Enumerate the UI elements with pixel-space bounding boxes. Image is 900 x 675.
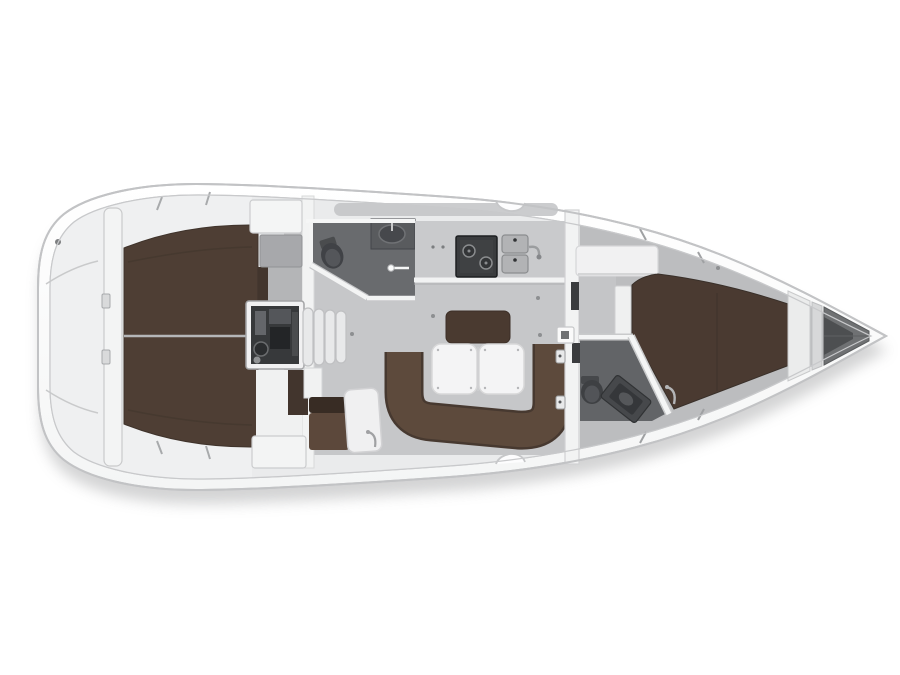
sink-basin bbox=[502, 255, 528, 273]
cabin-floor bbox=[579, 276, 616, 342]
step bbox=[325, 310, 335, 364]
bow-bulkhead-strip bbox=[812, 302, 822, 370]
wardrobe-top bbox=[260, 235, 302, 267]
lower-locker bbox=[252, 436, 306, 468]
drain-dot bbox=[513, 238, 517, 242]
galley bbox=[414, 221, 566, 284]
toilet-seat bbox=[585, 386, 600, 403]
hinge-dot bbox=[559, 401, 562, 404]
floor-dot bbox=[538, 333, 542, 337]
drain-dot bbox=[513, 258, 517, 262]
nav-seat bbox=[309, 413, 349, 450]
table-screw bbox=[517, 387, 519, 389]
handle-dot bbox=[366, 430, 370, 434]
bulkhead-hinge-icon bbox=[102, 294, 110, 308]
table-leaf bbox=[432, 344, 477, 394]
burner-dot bbox=[468, 250, 471, 253]
stove-icon bbox=[456, 236, 497, 277]
saloon-table bbox=[432, 344, 524, 394]
faucet-base bbox=[537, 255, 542, 260]
knob-dot bbox=[441, 245, 444, 248]
knob-dot bbox=[431, 245, 434, 248]
burner-dot bbox=[485, 262, 488, 265]
table-screw bbox=[517, 349, 519, 351]
table-screw bbox=[470, 387, 472, 389]
nav-wall bbox=[304, 368, 322, 398]
aft-cabins bbox=[124, 225, 258, 447]
floor-dot bbox=[431, 314, 435, 318]
floor-plan-canvas bbox=[0, 0, 900, 675]
table-screw bbox=[437, 387, 439, 389]
engine-compartment bbox=[246, 301, 304, 369]
step bbox=[303, 308, 313, 366]
sink-basin bbox=[502, 235, 528, 253]
wardrobe bbox=[615, 286, 631, 340]
engine-pulley-icon bbox=[254, 342, 268, 356]
bulkhead-hinge-icon bbox=[102, 350, 110, 364]
floor-dot bbox=[350, 332, 354, 336]
engine-part bbox=[255, 311, 266, 335]
engine-cap-icon bbox=[254, 357, 261, 364]
stern-bulkhead bbox=[104, 208, 122, 466]
door-catch-plate bbox=[561, 331, 569, 339]
yacht-floor-plan bbox=[0, 0, 900, 675]
nav-seat-backrest bbox=[309, 397, 349, 413]
table-screw bbox=[484, 349, 486, 351]
companionway-steps bbox=[303, 308, 346, 366]
settee-backrest bbox=[446, 311, 510, 343]
deck-dot bbox=[716, 266, 720, 270]
hinge-dot bbox=[559, 355, 562, 358]
handle-dot bbox=[665, 385, 669, 389]
step bbox=[336, 311, 346, 363]
table-screw bbox=[470, 349, 472, 351]
engine-part bbox=[270, 327, 290, 349]
forward-cabinet bbox=[576, 246, 658, 276]
table-screw bbox=[484, 387, 486, 389]
upper-locker bbox=[250, 200, 302, 233]
engine-part bbox=[269, 309, 291, 324]
step bbox=[314, 309, 324, 365]
floor-dot bbox=[536, 296, 540, 300]
table-screw bbox=[437, 349, 439, 351]
door-knob-icon bbox=[388, 265, 394, 271]
door-slot bbox=[572, 343, 580, 363]
door-slot bbox=[571, 282, 579, 310]
table-leaf bbox=[479, 344, 524, 394]
engine-part bbox=[292, 312, 298, 356]
